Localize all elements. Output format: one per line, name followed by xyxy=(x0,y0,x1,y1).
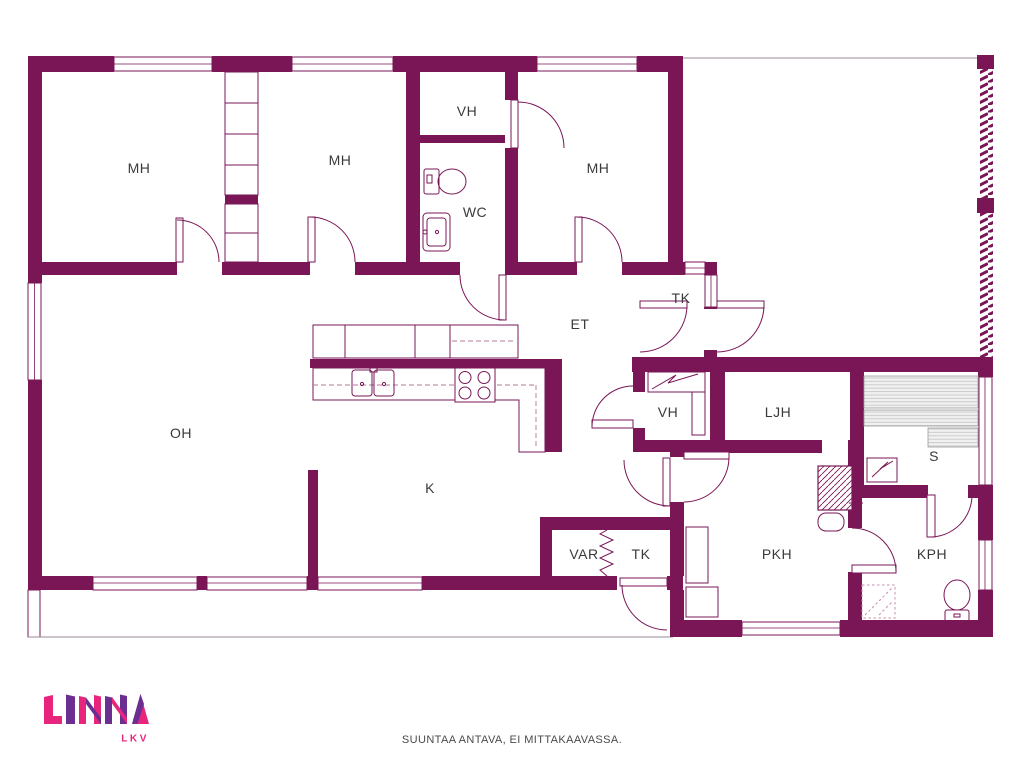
floor-plan-drawing: MH MH VH WC MH ET TK OH K VH LJH S VAR T… xyxy=(0,0,1024,768)
linna-logo-letters xyxy=(44,694,149,724)
windows xyxy=(28,57,992,635)
disclaimer-text: SUUNTAA ANTAVA, EI MITTAKAAVASSA. xyxy=(0,734,1024,746)
hallway-closets xyxy=(313,325,518,358)
room-label-mh-2: MH xyxy=(329,152,352,168)
toilet-icon-kph xyxy=(944,580,970,621)
storage-divider xyxy=(600,530,613,576)
kitchen-counter xyxy=(313,362,545,452)
sauna-bench xyxy=(864,376,978,408)
bathroom-fixtures xyxy=(849,496,970,621)
room-label-mh-3: MH xyxy=(587,160,610,176)
shower-icon xyxy=(862,585,895,618)
room-label-mh-1: MH xyxy=(128,160,151,176)
sauna-fixtures xyxy=(864,376,978,482)
bedroom-closet xyxy=(225,72,258,262)
stove-icon xyxy=(455,368,495,402)
chimney xyxy=(818,466,852,531)
room-label-k: K xyxy=(425,480,435,496)
sink-icon xyxy=(423,213,450,251)
room-label-et: ET xyxy=(571,316,590,332)
porch-step xyxy=(686,587,718,617)
room-label-vh-top: VH xyxy=(457,103,477,119)
room-label-vh-lower: VH xyxy=(658,404,678,420)
toilet-icon xyxy=(424,169,466,194)
sauna-bench xyxy=(928,428,978,447)
terrace-post xyxy=(977,55,994,69)
sauna-bench xyxy=(864,410,978,426)
floor-plan-canvas: MH MH VH WC MH ET TK OH K VH LJH S VAR T… xyxy=(0,0,1024,768)
room-label-wc: WC xyxy=(463,204,487,220)
sauna-stove-icon xyxy=(867,458,897,482)
porch-bench xyxy=(686,527,708,583)
wc-fixtures xyxy=(423,169,466,251)
room-label-pkh: PKH xyxy=(762,546,792,562)
terrace-post xyxy=(977,198,994,213)
room-label-tk-lower: TK xyxy=(632,546,651,562)
room-label-var: VAR xyxy=(569,546,598,562)
room-label-ljh: LJH xyxy=(765,404,791,420)
room-label-s: S xyxy=(929,448,939,464)
room-label-tk-entry: TK xyxy=(672,290,691,306)
room-label-oh: OH xyxy=(170,425,192,441)
room-label-kph: KPH xyxy=(917,546,947,562)
